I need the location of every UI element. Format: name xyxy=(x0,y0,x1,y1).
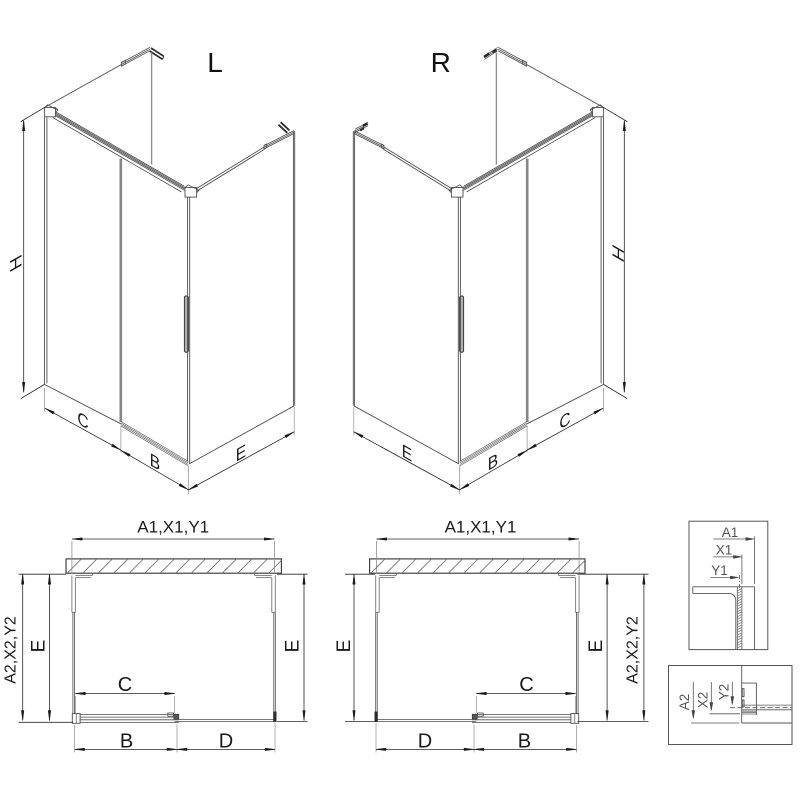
svg-text:C: C xyxy=(118,674,132,696)
svg-text:R: R xyxy=(431,47,451,78)
svg-text:A2,X2,Y2: A2,X2,Y2 xyxy=(3,616,20,684)
svg-text:X2: X2 xyxy=(696,692,711,709)
svg-text:B: B xyxy=(518,731,531,753)
svg-text:E: E xyxy=(283,640,304,653)
svg-text:C: C xyxy=(519,674,533,696)
svg-text:D: D xyxy=(418,731,432,753)
svg-text:B: B xyxy=(120,731,133,753)
svg-text:L: L xyxy=(207,47,223,78)
svg-text:Y2: Y2 xyxy=(717,684,732,701)
svg-text:A1: A1 xyxy=(722,525,739,540)
svg-text:Y1: Y1 xyxy=(711,563,728,578)
svg-text:A2,X2,Y2: A2,X2,Y2 xyxy=(625,616,642,684)
svg-text:E: E xyxy=(29,640,50,653)
svg-text:A1,X1,Y1: A1,X1,Y1 xyxy=(137,518,209,537)
svg-text:A2: A2 xyxy=(677,694,692,711)
svg-text:E: E xyxy=(334,640,355,653)
svg-text:D: D xyxy=(219,731,233,753)
svg-text:A1,X1,Y1: A1,X1,Y1 xyxy=(445,518,517,537)
svg-text:X1: X1 xyxy=(716,543,733,558)
svg-text:E: E xyxy=(586,640,607,653)
